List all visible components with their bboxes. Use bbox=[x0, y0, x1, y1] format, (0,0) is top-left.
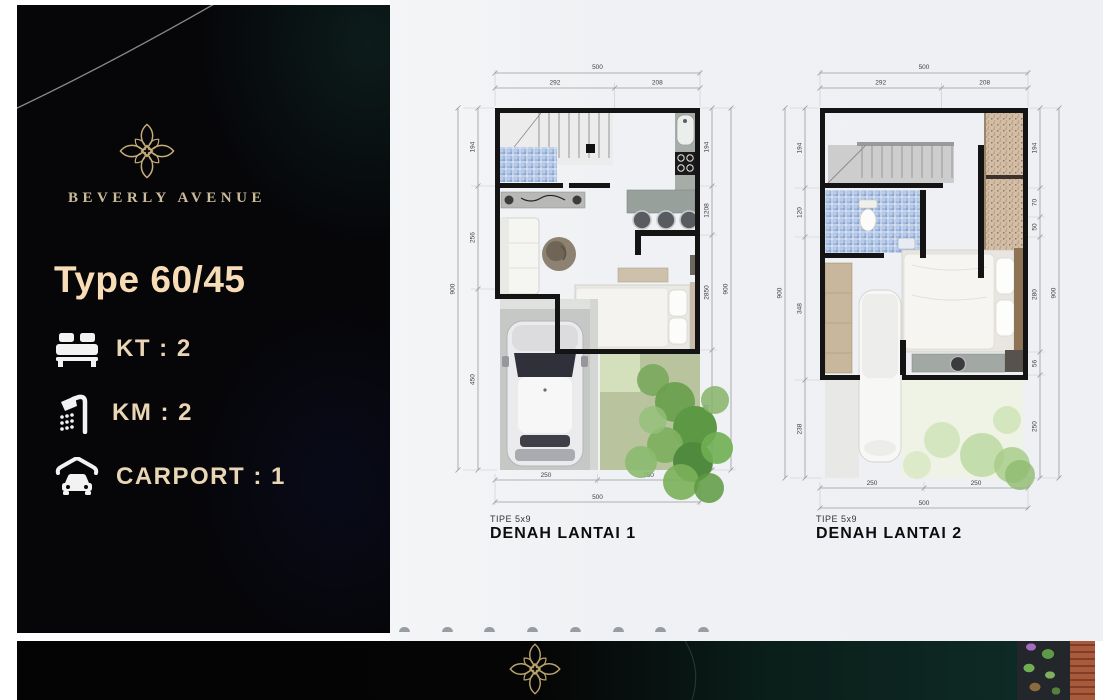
svg-text:2850: 2850 bbox=[704, 285, 711, 300]
svg-text:500: 500 bbox=[592, 494, 603, 501]
svg-text:208: 208 bbox=[652, 80, 663, 87]
svg-text:250: 250 bbox=[867, 480, 878, 487]
strip-dot bbox=[442, 627, 453, 632]
svg-text:50: 50 bbox=[1032, 223, 1039, 231]
bed-2 bbox=[902, 248, 1023, 354]
closet bbox=[825, 263, 852, 373]
shower-icon bbox=[55, 392, 95, 434]
unit-type-title: Type 60/45 bbox=[54, 259, 245, 301]
plan2-title: DENAH LANTAI 2 bbox=[816, 525, 962, 543]
brand-name: BEVERLY AVENUE bbox=[37, 190, 297, 207]
spec-row-bedrooms: KT : 2 bbox=[55, 327, 192, 371]
staircase-2 bbox=[828, 142, 954, 183]
svg-text:292: 292 bbox=[875, 80, 886, 87]
spec-label-carport: CARPORT : 1 bbox=[116, 463, 286, 491]
photo-thumbnail bbox=[1017, 641, 1095, 700]
floor-plan-1: 500 292 208 900 194 256 450 194 1208 285… bbox=[443, 50, 755, 520]
thumbnail-strip-dots bbox=[399, 627, 709, 632]
spec-label-km: KM : 2 bbox=[112, 399, 193, 427]
car bbox=[502, 321, 588, 466]
brand-logo bbox=[118, 122, 176, 180]
strip-dot bbox=[399, 627, 410, 632]
plan2-caption: TIPE 5x9 DENAH LANTAI 2 bbox=[816, 514, 962, 543]
plan1-tipe-label: TIPE 5x9 bbox=[490, 514, 636, 524]
svg-text:194: 194 bbox=[1032, 142, 1039, 153]
plan1-title: DENAH LANTAI 1 bbox=[490, 525, 636, 543]
spec-row-carport: CARPORT : 1 bbox=[55, 455, 286, 499]
strip-dot bbox=[484, 627, 495, 632]
strip-dot bbox=[698, 627, 709, 632]
brick-wall bbox=[1070, 641, 1095, 700]
svg-text:900: 900 bbox=[723, 283, 730, 294]
svg-text:70: 70 bbox=[1032, 199, 1039, 207]
bed-icon bbox=[55, 330, 99, 368]
svg-text:900: 900 bbox=[450, 283, 457, 294]
svg-text:500: 500 bbox=[919, 500, 930, 507]
svg-text:250: 250 bbox=[1032, 421, 1039, 432]
svg-text:900: 900 bbox=[1051, 287, 1058, 298]
carport-roof-areas bbox=[825, 380, 1035, 490]
kitchen-counter bbox=[627, 113, 698, 229]
desk bbox=[912, 350, 1023, 372]
strip-dot bbox=[655, 627, 666, 632]
strip-dot bbox=[613, 627, 624, 632]
carport-icon bbox=[55, 457, 99, 497]
svg-text:120: 120 bbox=[797, 207, 804, 218]
plan2-tipe-label: TIPE 5x9 bbox=[816, 514, 962, 524]
kitchen-island bbox=[627, 190, 695, 213]
svg-text:250: 250 bbox=[971, 480, 982, 487]
svg-text:450: 450 bbox=[470, 374, 477, 385]
svg-text:194: 194 bbox=[704, 141, 711, 152]
svg-text:900: 900 bbox=[777, 287, 784, 298]
footer-decorative-curve bbox=[640, 641, 760, 700]
spec-row-bathrooms: KM : 2 bbox=[55, 391, 193, 435]
sofa bbox=[499, 218, 539, 294]
strip-dot bbox=[527, 627, 538, 632]
svg-text:208: 208 bbox=[979, 80, 990, 87]
svg-text:56: 56 bbox=[1032, 360, 1039, 368]
bath-sink bbox=[898, 238, 915, 249]
toilet bbox=[859, 200, 877, 231]
car-below bbox=[859, 290, 901, 462]
svg-text:500: 500 bbox=[919, 64, 930, 71]
svg-text:194: 194 bbox=[470, 141, 477, 152]
plan1-caption: TIPE 5x9 DENAH LANTAI 1 bbox=[490, 514, 636, 543]
tv-console bbox=[501, 192, 585, 208]
decorative-arc bbox=[17, 5, 237, 125]
footer-brand-logo bbox=[508, 642, 562, 696]
floor-plan-2: 500 292 208 900 194 120 348 238 194 70 5… bbox=[762, 50, 1102, 520]
bathroom-1 bbox=[500, 147, 557, 182]
svg-text:194: 194 bbox=[797, 142, 804, 153]
svg-text:280: 280 bbox=[1032, 289, 1039, 300]
svg-text:256: 256 bbox=[470, 232, 477, 243]
spec-label-kt: KT : 2 bbox=[116, 335, 192, 363]
svg-text:500: 500 bbox=[592, 64, 603, 71]
strip-dot bbox=[570, 627, 581, 632]
svg-text:348: 348 bbox=[797, 303, 804, 314]
sidebar: BEVERLY AVENUE Type 60/45 KT : 2 bbox=[17, 5, 390, 633]
presentation-slide: 500 292 208 900 194 256 450 194 1208 285… bbox=[0, 0, 1120, 700]
bar-stools bbox=[633, 211, 698, 229]
svg-text:292: 292 bbox=[549, 80, 560, 87]
bench bbox=[618, 268, 668, 282]
coffee-table bbox=[542, 237, 576, 271]
svg-text:1208: 1208 bbox=[704, 203, 711, 218]
svg-text:238: 238 bbox=[797, 423, 804, 434]
svg-text:250: 250 bbox=[541, 472, 552, 479]
